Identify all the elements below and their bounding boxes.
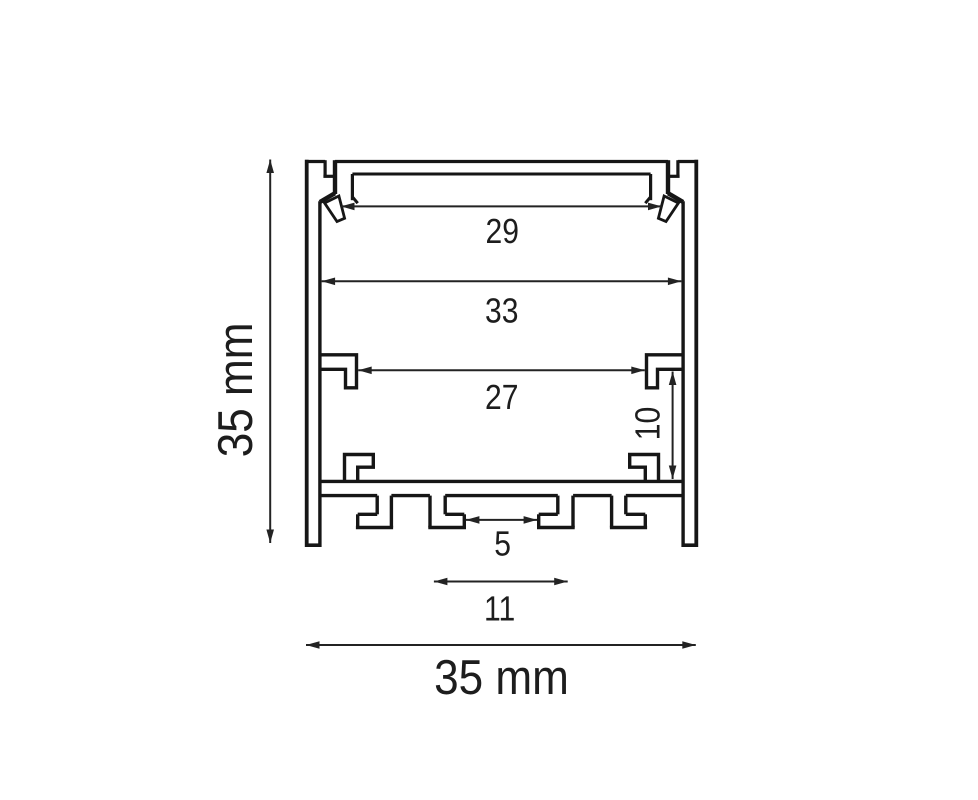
svg-text:5: 5 xyxy=(494,525,511,564)
svg-text:29: 29 xyxy=(485,212,518,251)
svg-text:35 mm: 35 mm xyxy=(434,651,569,705)
svg-text:33: 33 xyxy=(485,292,518,331)
svg-text:27: 27 xyxy=(485,378,518,417)
svg-text:11: 11 xyxy=(484,589,515,628)
svg-text:35 mm: 35 mm xyxy=(209,323,263,458)
svg-text:10: 10 xyxy=(628,407,667,440)
